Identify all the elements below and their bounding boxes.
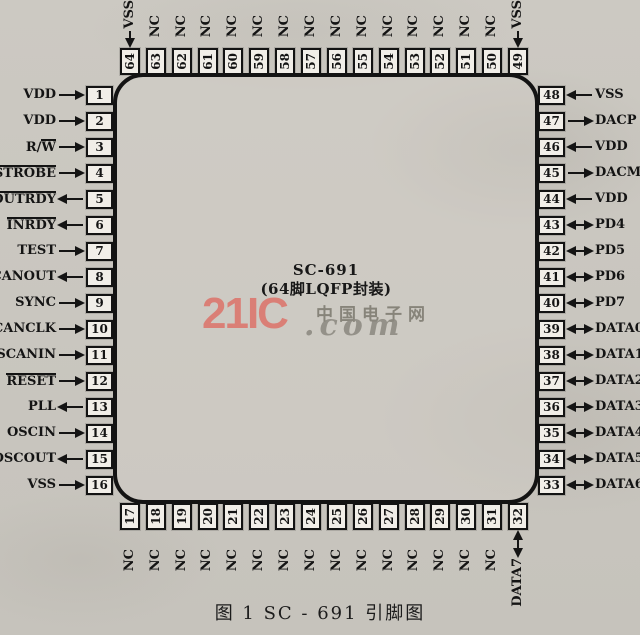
pin-number: 50 <box>486 53 498 70</box>
pin-arrow-out <box>568 172 592 174</box>
pin-box: 50 <box>482 48 502 75</box>
pin-17-nc: 17NC <box>117 503 143 633</box>
pin-60-nc: NC60 <box>221 0 247 75</box>
pin-box: 34 <box>538 450 565 469</box>
pin-label: NC <box>485 549 499 571</box>
pin-9-sync: SYNC9 <box>0 290 114 316</box>
pin-number: 10 <box>91 323 108 335</box>
pin-box: 43 <box>538 216 565 235</box>
pin-33-data6: 33DATA6 <box>538 472 640 498</box>
pin-45-dacm: 45DACM <box>538 160 640 186</box>
pin-label: NC <box>459 549 473 571</box>
pin-arrow-bi <box>568 354 592 356</box>
pin-label: NC <box>278 15 292 37</box>
pin-number: 37 <box>543 375 560 387</box>
pin-number: 19 <box>176 508 188 525</box>
pin-box: 37 <box>538 372 565 391</box>
pin-arrow-in <box>59 120 83 122</box>
pin-arrow-bi <box>517 532 519 556</box>
pin-box: 41 <box>538 268 565 287</box>
overline-part: W <box>41 139 56 156</box>
pin-number: 61 <box>202 53 214 70</box>
pin-arrow-in <box>59 354 83 356</box>
pin-number: 33 <box>543 479 560 491</box>
pin-number: 42 <box>543 245 560 257</box>
pin-box: 1 <box>86 86 113 105</box>
pin-label: STROBE <box>0 165 56 182</box>
pin-label: PD7 <box>595 296 625 310</box>
pin-arrow-bi <box>568 250 592 252</box>
pin-arrow-in <box>59 250 83 252</box>
pin-37-data2: 37DATA2 <box>538 368 640 394</box>
pin-number: 59 <box>253 53 265 70</box>
pin-31-nc: 31NC <box>479 503 505 633</box>
pin-3-r/w: R/W3 <box>0 134 114 160</box>
pin-box: 17 <box>120 503 140 530</box>
pin-47-dacp: 47DACP <box>538 108 640 134</box>
pin-label: NC <box>304 549 318 571</box>
pin-13-pll: PLL13 <box>0 394 114 420</box>
pin-number: 18 <box>150 508 162 525</box>
pin-label: VDD <box>23 114 56 128</box>
pin-number: 25 <box>331 508 343 525</box>
pin-label: NC <box>407 549 421 571</box>
pins-top: VSS64NC63NC62NC61NC60NC59NC58NC57NC56NC5… <box>117 0 531 75</box>
pins-bottom: 17NC18NC19NC20NC21NC22NC23NC24NC25NC26NC… <box>117 503 531 633</box>
pin-label: R/W <box>26 139 56 156</box>
pin-number: 6 <box>95 219 103 231</box>
pin-number: 39 <box>543 323 560 335</box>
pin-arrow-out <box>59 276 83 278</box>
pin-box: 3 <box>86 138 113 157</box>
pin-number: 17 <box>124 508 136 525</box>
pin-number: 20 <box>202 508 214 525</box>
pin-label: PD4 <box>595 218 625 232</box>
pin-label: OSCIN <box>7 426 56 440</box>
pin-label: PD6 <box>595 270 625 284</box>
pin-box: 11 <box>86 346 113 365</box>
pin-24-nc: 24NC <box>298 503 324 633</box>
pin-51-nc: NC51 <box>453 0 479 75</box>
pin-1-vdd: VDD1 <box>0 82 114 108</box>
pin-box: 42 <box>538 242 565 261</box>
pin-box: 63 <box>146 48 166 75</box>
pin-arrow-out <box>59 224 83 226</box>
pin-44-vdd: 44VDD <box>538 186 640 212</box>
pin-number: 7 <box>95 245 103 257</box>
pin-label: DATA2 <box>595 374 640 388</box>
pin-arrow-bi <box>568 484 592 486</box>
pin-box: 25 <box>327 503 347 530</box>
overline-part: OUTRDY <box>0 191 56 208</box>
pin-number: 34 <box>543 453 560 465</box>
pin-label: RESET <box>6 373 56 390</box>
pin-box: 54 <box>379 48 399 75</box>
pin-box: 28 <box>405 503 425 530</box>
pin-box: 57 <box>301 48 321 75</box>
pin-label: SYNC <box>15 296 56 310</box>
pin-label: DATA7 <box>511 558 525 607</box>
pin-label: DACP <box>595 114 636 128</box>
pin-label: VSS <box>123 0 137 29</box>
pin-box: 58 <box>275 48 295 75</box>
pin-arrow-in <box>568 146 592 148</box>
pin-40-pd7: 40PD7 <box>538 290 640 316</box>
pin-label: NC <box>252 549 266 571</box>
pin-number: 22 <box>253 508 265 525</box>
pin-label: OSCOUT <box>0 452 56 466</box>
pin-29-nc: 29NC <box>428 503 454 633</box>
overline-part: STROBE <box>0 165 56 182</box>
pin-box: 49 <box>508 48 528 75</box>
pin-number: 13 <box>91 401 108 413</box>
pin-number: 45 <box>543 167 560 179</box>
pin-label: NC <box>304 15 318 37</box>
chip-package: (64脚LQFP封装) <box>113 280 539 299</box>
pin-label: NC <box>278 549 292 571</box>
pin-2-vdd: VDD2 <box>0 108 114 134</box>
chip-text-block: SC-691 (64脚LQFP封装) <box>113 261 539 299</box>
pin-52-nc: NC52 <box>428 0 454 75</box>
pin-label: DATA1 <box>595 348 640 362</box>
pin-box: 40 <box>538 294 565 313</box>
pin-box: 35 <box>538 424 565 443</box>
pin-box: 4 <box>86 164 113 183</box>
pin-box: 15 <box>86 450 113 469</box>
pin-label: NC <box>485 15 499 37</box>
pin-arrow-in <box>129 31 131 46</box>
pin-arrow-bi <box>568 432 592 434</box>
pin-box: 38 <box>538 346 565 365</box>
pin-label: NC <box>433 15 447 37</box>
pin-label: NC <box>330 549 344 571</box>
pin-label: NC <box>382 15 396 37</box>
pin-box: 31 <box>482 503 502 530</box>
pin-number: 4 <box>95 167 103 179</box>
pin-number: 28 <box>409 508 421 525</box>
pin-label: NC <box>433 549 447 571</box>
pin-number: 29 <box>434 508 446 525</box>
pin-5-outrdy: OUTRDY5 <box>0 186 114 212</box>
pin-56-nc: NC56 <box>324 0 350 75</box>
pin-label: VSS <box>511 0 525 29</box>
pin-arrow-bi <box>568 380 592 382</box>
pin-label: NC <box>226 15 240 37</box>
pin-8-scanout: SCANOUT8 <box>0 264 114 290</box>
pin-number: 44 <box>543 193 560 205</box>
pin-19-nc: 19NC <box>169 503 195 633</box>
pin-number: 38 <box>543 349 560 361</box>
pin-arrow-in <box>59 484 83 486</box>
pin-62-nc: NC62 <box>169 0 195 75</box>
pin-label: NC <box>149 15 163 37</box>
pin-53-nc: NC53 <box>402 0 428 75</box>
pin-label: NC <box>382 549 396 571</box>
pin-label: NC <box>252 15 266 37</box>
pin-box: 48 <box>538 86 565 105</box>
pin-label: PLL <box>28 400 56 414</box>
pin-number: 35 <box>543 427 560 439</box>
pin-label: SCANCLK <box>0 322 56 336</box>
pin-18-nc: 18NC <box>143 503 169 633</box>
overline-part: RESET <box>6 373 56 390</box>
pin-arrow-in <box>568 94 592 96</box>
pin-label: DATA5 <box>595 452 640 466</box>
pin-27-nc: 27NC <box>376 503 402 633</box>
pin-box: 13 <box>86 398 113 417</box>
pin-box: 51 <box>456 48 476 75</box>
pin-50-nc: NC50 <box>479 0 505 75</box>
pins-left: VDD1VDD2R/W3STROBE4OUTRDY5INRDY6TEST7SCA… <box>0 82 114 498</box>
pin-64-vss: VSS64 <box>117 0 143 75</box>
pin-box: 53 <box>405 48 425 75</box>
pin-54-nc: NC54 <box>376 0 402 75</box>
pin-41-pd6: 41PD6 <box>538 264 640 290</box>
pin-number: 49 <box>512 53 524 70</box>
pin-box: 29 <box>430 503 450 530</box>
pin-number: 36 <box>543 401 560 413</box>
pin-number: 5 <box>95 193 103 205</box>
pin-39-data0: 39DATA0 <box>538 316 640 342</box>
pin-arrow-in <box>59 94 83 96</box>
pin-6-inrdy: INRDY6 <box>0 212 114 238</box>
pin-15-oscout: OSCOUT15 <box>0 446 114 472</box>
pin-23-nc: 23NC <box>272 503 298 633</box>
pin-28-nc: 28NC <box>402 503 428 633</box>
pin-36-data3: 36DATA3 <box>538 394 640 420</box>
pin-arrow-in <box>568 198 592 200</box>
pin-14-oscin: OSCIN14 <box>0 420 114 446</box>
pin-box: 14 <box>86 424 113 443</box>
pin-number: 27 <box>383 508 395 525</box>
pin-label: TEST <box>17 244 56 258</box>
pin-box: 36 <box>538 398 565 417</box>
pin-label: DATA0 <box>595 322 640 336</box>
pin-arrow-bi <box>568 302 592 304</box>
pin-label: PD5 <box>595 244 625 258</box>
pin-number: 52 <box>434 53 446 70</box>
pin-arrow-bi <box>568 276 592 278</box>
pin-label: OUTRDY <box>0 191 56 208</box>
pin-61-nc: NC61 <box>195 0 221 75</box>
pin-box: 5 <box>86 190 113 209</box>
pin-label: VSS <box>595 88 624 102</box>
pin-number: 9 <box>95 297 103 309</box>
pin-box: 26 <box>353 503 373 530</box>
pin-7-test: TEST7 <box>0 238 114 264</box>
pin-43-pd4: 43PD4 <box>538 212 640 238</box>
pin-number: 2 <box>95 115 103 127</box>
pin-number: 55 <box>357 53 369 70</box>
pin-number: 40 <box>543 297 560 309</box>
pin-number: 46 <box>543 141 560 153</box>
pin-58-nc: NC58 <box>272 0 298 75</box>
pin-box: 30 <box>456 503 476 530</box>
pin-number: 1 <box>95 89 103 101</box>
pin-label: NC <box>356 15 370 37</box>
pin-number: 53 <box>409 53 421 70</box>
pin-box: 46 <box>538 138 565 157</box>
pin-35-data4: 35DATA4 <box>538 420 640 446</box>
pin-box: 2 <box>86 112 113 131</box>
pin-arrow-bi <box>568 224 592 226</box>
pin-arrow-in <box>59 172 83 174</box>
pin-box: 7 <box>86 242 113 261</box>
chip-name: SC-691 <box>113 261 539 280</box>
pin-number: 23 <box>279 508 291 525</box>
pin-box: 18 <box>146 503 166 530</box>
pin-label: VSS <box>27 478 56 492</box>
pin-box: 8 <box>86 268 113 287</box>
pin-16-vss: VSS16 <box>0 472 114 498</box>
pin-label: NC <box>200 549 214 571</box>
pin-box: 39 <box>538 320 565 339</box>
pin-label: NC <box>123 549 137 571</box>
pin-box: 33 <box>538 476 565 495</box>
pin-label: DATA3 <box>595 400 640 414</box>
pin-4-strobe: STROBE4 <box>0 160 114 186</box>
pin-number: 62 <box>176 53 188 70</box>
pin-arrow-bi <box>568 328 592 330</box>
pin-arrow-bi <box>568 406 592 408</box>
pin-20-nc: 20NC <box>195 503 221 633</box>
pin-box: 52 <box>430 48 450 75</box>
pin-arrow-in <box>517 31 519 46</box>
pin-42-pd5: 42PD5 <box>538 238 640 264</box>
pin-label: DACM <box>595 166 640 180</box>
pin-number: 64 <box>124 53 136 70</box>
pin-box: 10 <box>86 320 113 339</box>
pin-label: VDD <box>595 192 628 206</box>
pin-box: 24 <box>301 503 321 530</box>
pin-box: 23 <box>275 503 295 530</box>
pin-box: 6 <box>86 216 113 235</box>
pin-arrow-in <box>59 146 83 148</box>
pin-number: 56 <box>331 53 343 70</box>
pin-38-data1: 38DATA1 <box>538 342 640 368</box>
pin-label: VDD <box>23 88 56 102</box>
pin-number: 16 <box>91 479 108 491</box>
pin-25-nc: 25NC <box>324 503 350 633</box>
pin-box: 12 <box>86 372 113 391</box>
pin-34-data5: 34DATA5 <box>538 446 640 472</box>
pin-57-nc: NC57 <box>298 0 324 75</box>
pin-box: 64 <box>120 48 140 75</box>
pin-box: 59 <box>249 48 269 75</box>
pin-arrow-in <box>59 380 83 382</box>
pin-arrow-out <box>59 458 83 460</box>
pin-label: NC <box>175 15 189 37</box>
pin-number: 21 <box>227 508 239 525</box>
pin-label: NC <box>149 549 163 571</box>
pin-number: 32 <box>512 508 524 525</box>
pin-32-data7: 32DATA7 <box>505 503 531 633</box>
pin-number: 26 <box>357 508 369 525</box>
pin-arrow-out <box>59 198 83 200</box>
pin-box: 16 <box>86 476 113 495</box>
pin-arrow-bi <box>568 458 592 460</box>
pin-59-nc: NC59 <box>246 0 272 75</box>
pin-box: 62 <box>172 48 192 75</box>
pin-49-vss: VSS49 <box>505 0 531 75</box>
pin-10-scanclk: SCANCLK10 <box>0 316 114 342</box>
pin-number: 47 <box>543 115 560 127</box>
pin-label: DATA6 <box>595 478 640 492</box>
pin-number: 48 <box>543 89 560 101</box>
figure-scan: SC-691 (64脚LQFP封装) 21IC 中国电子网 .com VSS64… <box>0 0 640 635</box>
pin-48-vss: 48VSS <box>538 82 640 108</box>
pin-box: 60 <box>223 48 243 75</box>
pin-box: 55 <box>353 48 373 75</box>
pin-number: 60 <box>227 53 239 70</box>
pin-number: 14 <box>91 427 108 439</box>
pin-number: 30 <box>460 508 472 525</box>
pin-55-nc: NC55 <box>350 0 376 75</box>
pin-26-nc: 26NC <box>350 503 376 633</box>
pin-label: NC <box>200 15 214 37</box>
pin-arrow-out <box>59 406 83 408</box>
pin-box: 45 <box>538 164 565 183</box>
pin-box: 47 <box>538 112 565 131</box>
pin-12-reset: RESET12 <box>0 368 114 394</box>
pin-box: 56 <box>327 48 347 75</box>
pin-box: 20 <box>198 503 218 530</box>
pin-number: 43 <box>543 219 560 231</box>
pin-box: 27 <box>379 503 399 530</box>
pin-label: DATA4 <box>595 426 640 440</box>
pin-11-scanin: SCANIN11 <box>0 342 114 368</box>
pin-arrow-in <box>59 328 83 330</box>
watermark-domain-suffix: .com <box>304 308 404 343</box>
pin-box: 32 <box>508 503 528 530</box>
pin-21-nc: 21NC <box>221 503 247 633</box>
pin-label: INRDY <box>7 217 56 234</box>
pin-label: NC <box>226 549 240 571</box>
pin-box: 44 <box>538 190 565 209</box>
pin-number: 11 <box>91 349 108 361</box>
pin-number: 12 <box>91 375 108 387</box>
watermark-brand: 21IC <box>202 292 287 336</box>
pin-number: 57 <box>305 53 317 70</box>
pin-63-nc: NC63 <box>143 0 169 75</box>
pin-22-nc: 22NC <box>246 503 272 633</box>
pin-label: NC <box>407 15 421 37</box>
pin-box: 9 <box>86 294 113 313</box>
pin-box: 22 <box>249 503 269 530</box>
pin-box: 19 <box>172 503 192 530</box>
overline-part: INRDY <box>7 217 56 234</box>
pin-number: 41 <box>543 271 560 283</box>
pin-arrow-in <box>59 302 83 304</box>
pin-number: 8 <box>95 271 103 283</box>
pin-box: 21 <box>223 503 243 530</box>
pin-number: 15 <box>91 453 108 465</box>
pin-label: NC <box>356 549 370 571</box>
pin-box: 61 <box>198 48 218 75</box>
pin-label: NC <box>459 15 473 37</box>
pin-number: 24 <box>305 508 317 525</box>
pin-number: 58 <box>279 53 291 70</box>
pin-label: VDD <box>595 140 628 154</box>
pin-label: NC <box>175 549 189 571</box>
pin-46-vdd: 46VDD <box>538 134 640 160</box>
pin-number: 51 <box>460 53 472 70</box>
pin-label: SCANIN <box>0 348 56 362</box>
pin-number: 54 <box>383 53 395 70</box>
pin-label: NC <box>330 15 344 37</box>
pin-number: 63 <box>150 53 162 70</box>
pin-number: 3 <box>95 141 103 153</box>
